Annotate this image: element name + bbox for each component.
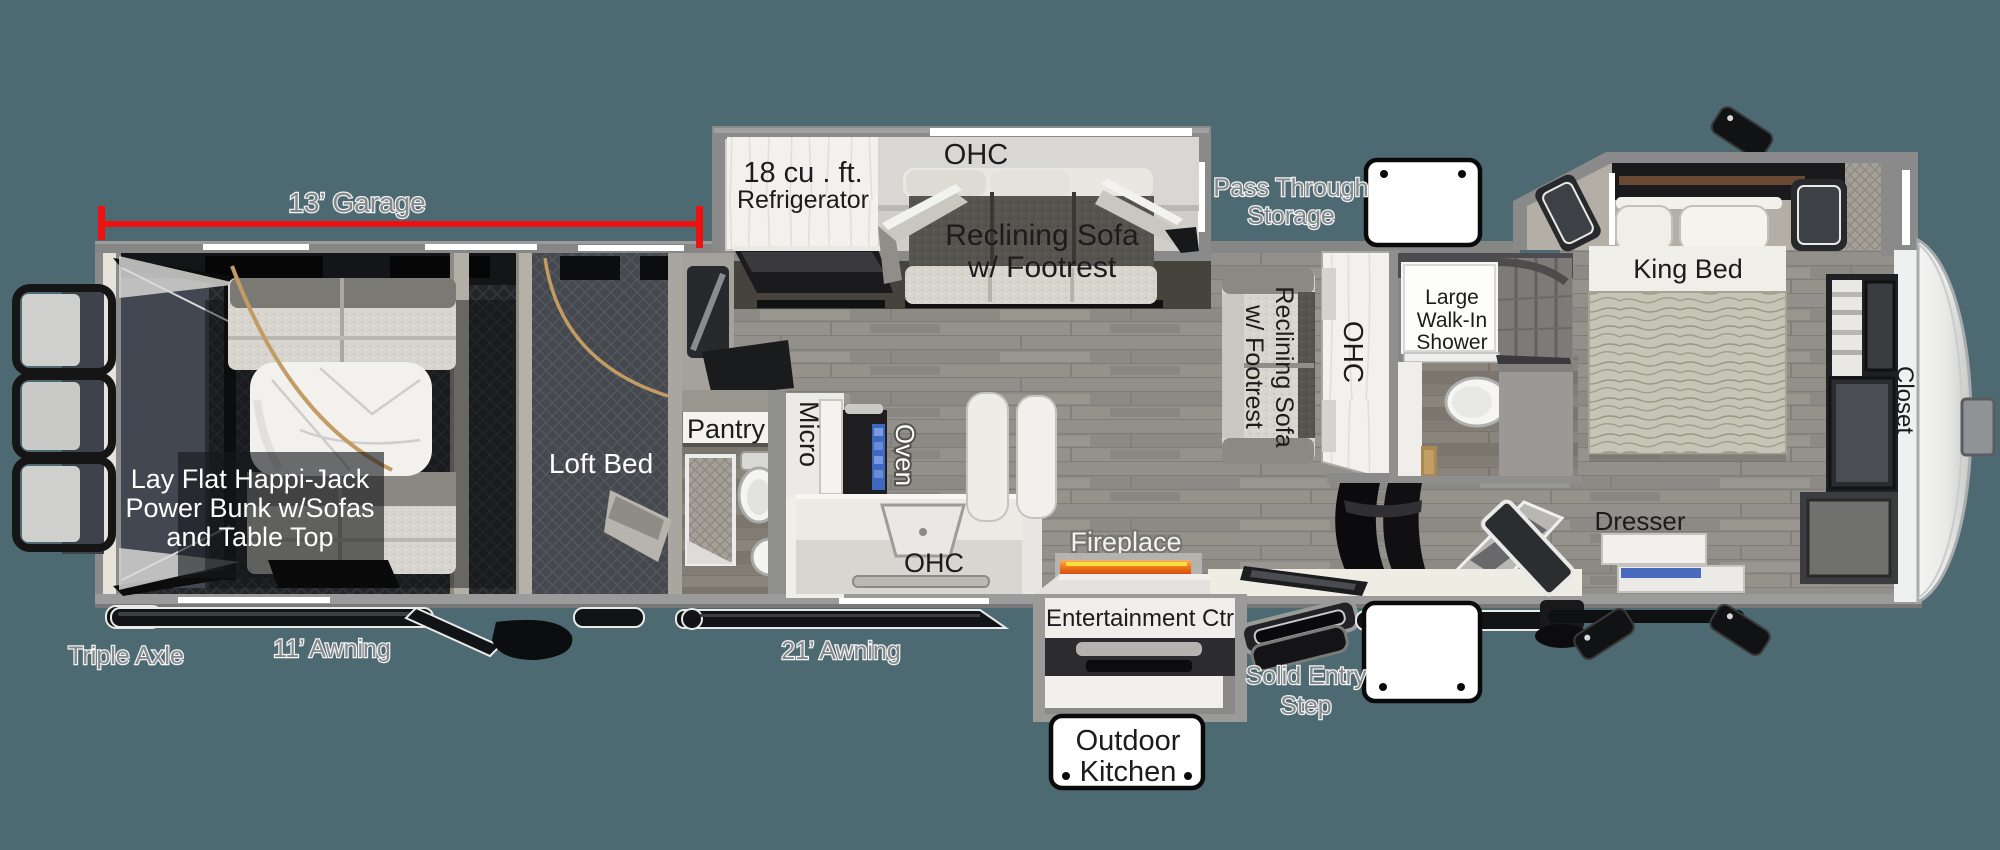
svg-text:Reclining Sofa: Reclining Sofa: [1270, 286, 1298, 447]
svg-text:Large: Large: [1425, 286, 1479, 309]
svg-text:18 cu . ft.: 18 cu . ft.: [743, 157, 862, 189]
svg-text:Storage: Storage: [1247, 202, 1335, 230]
svg-text:Pantry: Pantry: [687, 414, 766, 444]
svg-text:OHC: OHC: [944, 139, 1008, 171]
svg-text:Pass Through: Pass Through: [1213, 174, 1368, 202]
svg-text:Solid Entry: Solid Entry: [1246, 662, 1367, 690]
svg-text:Micro: Micro: [794, 401, 824, 467]
svg-text:21’ Awning: 21’ Awning: [781, 637, 901, 665]
svg-text:w/ Footrest: w/ Footrest: [967, 251, 1117, 284]
svg-text:Reclining Sofa: Reclining Sofa: [945, 219, 1139, 252]
svg-text:Step: Step: [1280, 692, 1331, 720]
svg-text:11’ Awning: 11’ Awning: [273, 635, 391, 663]
svg-text:OHC: OHC: [904, 548, 964, 578]
svg-text:Dresser: Dresser: [1594, 506, 1685, 536]
svg-text:Shower: Shower: [1416, 331, 1487, 354]
svg-text:Lay Flat Happi-Jack: Lay Flat Happi-Jack: [131, 464, 370, 494]
svg-text:Refrigerator: Refrigerator: [737, 186, 869, 214]
svg-text:OHC: OHC: [1338, 321, 1369, 383]
svg-text:Oven: Oven: [890, 424, 920, 486]
svg-text:13’ Garage: 13’ Garage: [288, 187, 426, 218]
svg-text:w/ Footrest: w/ Footrest: [1240, 304, 1268, 429]
svg-text:King Bed: King Bed: [1633, 254, 1743, 284]
svg-text:Loft Bed: Loft Bed: [549, 448, 653, 479]
svg-text:Entertainment Ctr: Entertainment Ctr: [1046, 605, 1234, 632]
svg-text:Triple Axle: Triple Axle: [68, 642, 184, 670]
svg-text:and Table Top: and Table Top: [166, 522, 333, 552]
svg-text:Walk-In: Walk-In: [1417, 309, 1487, 332]
svg-text:Kitchen: Kitchen: [1080, 756, 1177, 788]
svg-text:Closet: Closet: [1891, 366, 1918, 434]
svg-text:Outdoor: Outdoor: [1076, 725, 1181, 757]
svg-text:Power Bunk w/Sofas: Power Bunk w/Sofas: [125, 493, 374, 523]
svg-text:Fireplace: Fireplace: [1070, 527, 1181, 557]
